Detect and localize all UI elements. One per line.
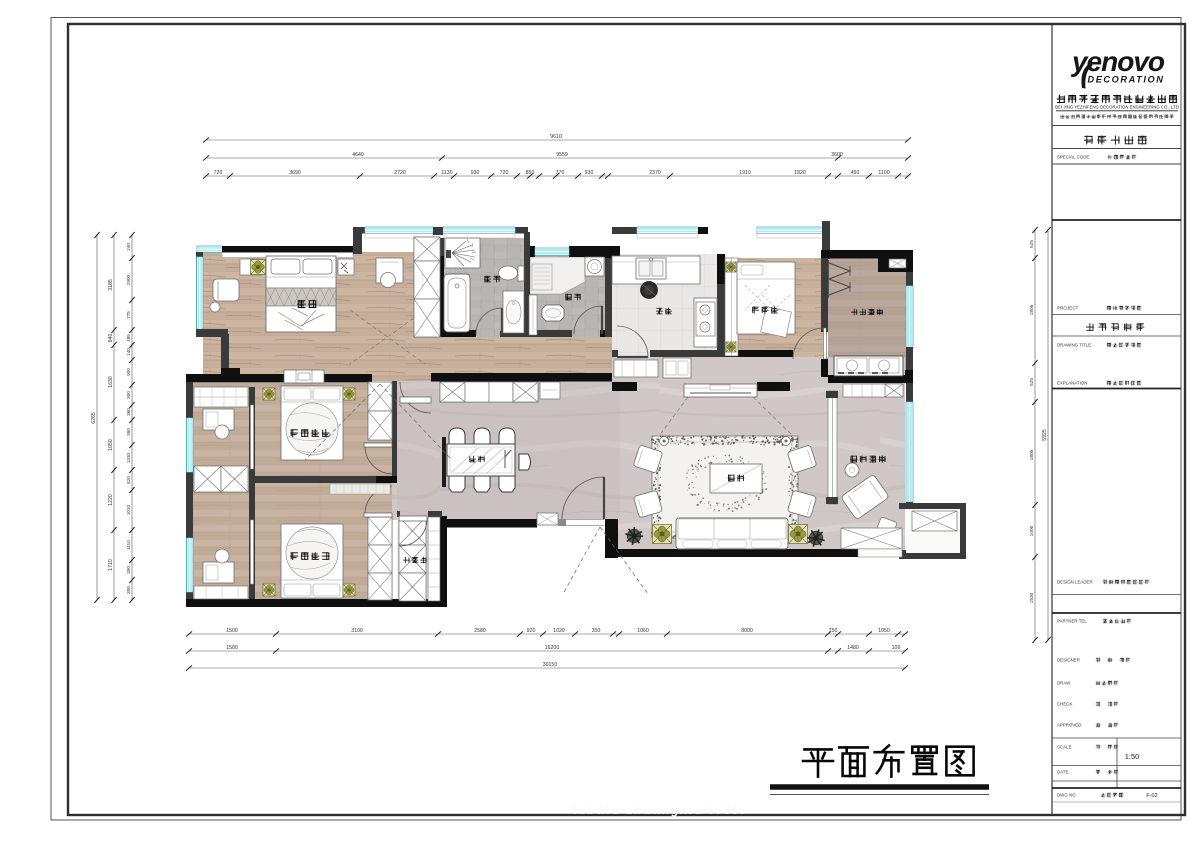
svg-text:DRAWING TITLE: DRAWING TITLE: [1057, 343, 1091, 348]
svg-text:8000: 8000: [741, 628, 753, 634]
svg-text:1530: 1530: [1029, 592, 1035, 603]
svg-text:1710: 1710: [108, 559, 114, 571]
svg-text:BEI JING YEZHIFENG DECORATION: BEI JING YEZHIFENG DECORATION ENGINEERIN…: [1055, 105, 1178, 110]
svg-text:750: 750: [829, 628, 838, 634]
svg-text:3100: 3100: [351, 628, 363, 634]
svg-text:1330: 1330: [126, 452, 131, 463]
svg-text:SCALE: SCALE: [1057, 745, 1071, 750]
svg-text:16200: 16200: [545, 645, 560, 651]
svg-text:185: 185: [126, 334, 131, 342]
svg-text:DESIGN LEADER: DESIGN LEADER: [1057, 580, 1093, 585]
svg-text:1910: 1910: [739, 170, 751, 176]
svg-text:1020: 1020: [553, 628, 565, 634]
svg-text:1060: 1060: [637, 628, 649, 634]
svg-text:EXPLANATION: EXPLANATION: [1057, 381, 1087, 386]
svg-text:720: 720: [214, 170, 223, 176]
svg-text:9559: 9559: [556, 152, 568, 158]
svg-text:525: 525: [1029, 378, 1035, 386]
svg-text:1806: 1806: [1029, 304, 1035, 315]
svg-text:6265: 6265: [91, 412, 97, 424]
svg-text:1500: 1500: [226, 628, 238, 634]
svg-text:3690: 3690: [289, 170, 301, 176]
svg-text:380: 380: [126, 428, 131, 436]
svg-text:930: 930: [471, 170, 480, 176]
svg-text:300: 300: [126, 391, 131, 399]
svg-text:1500: 1500: [226, 645, 238, 651]
svg-text:450: 450: [851, 170, 860, 176]
svg-text:APPROVED: APPROVED: [1057, 723, 1081, 728]
svg-text:300: 300: [126, 586, 131, 594]
svg-text:1806: 1806: [1029, 449, 1035, 460]
svg-text:350: 350: [126, 566, 131, 574]
svg-text:1006: 1006: [1029, 525, 1035, 536]
svg-text:4640: 4640: [352, 152, 364, 158]
svg-text:360: 360: [126, 408, 131, 416]
svg-text:140: 140: [126, 348, 131, 356]
svg-text:240: 240: [126, 243, 131, 251]
svg-text:F-02: F-02: [1146, 793, 1157, 799]
svg-text:1010: 1010: [126, 504, 131, 515]
svg-text:1050: 1050: [108, 439, 114, 451]
svg-text:900: 900: [126, 368, 131, 376]
svg-text:1050: 1050: [878, 628, 890, 634]
svg-text:1480: 1480: [847, 645, 859, 651]
svg-text:106: 106: [892, 645, 901, 651]
svg-text:SPECIAL CODE: SPECIAL CODE: [1057, 155, 1089, 160]
svg-text:DECORATION: DECORATION: [1087, 75, 1164, 85]
svg-text:1100: 1100: [878, 170, 889, 176]
svg-text:770: 770: [556, 170, 565, 176]
svg-text:720: 720: [500, 170, 509, 176]
svg-text:1820: 1820: [794, 170, 806, 176]
svg-text:930: 930: [585, 170, 594, 176]
svg-text:9610: 9610: [550, 134, 562, 140]
svg-text:DESIGNER: DESIGNER: [1057, 658, 1080, 663]
svg-text:820: 820: [126, 476, 131, 484]
svg-text:2900: 2900: [126, 274, 131, 285]
svg-text:DWG NO: DWG NO: [1057, 793, 1076, 798]
svg-text:525: 525: [1029, 240, 1035, 248]
svg-text:850: 850: [526, 170, 535, 176]
svg-text:1:50: 1:50: [1125, 752, 1140, 761]
svg-text:5925: 5925: [1042, 429, 1048, 441]
svg-text:2580: 2580: [474, 628, 486, 634]
svg-text:1220: 1220: [108, 494, 114, 506]
svg-text:2720: 2720: [394, 170, 406, 176]
svg-text:1110: 1110: [126, 540, 131, 550]
svg-text:940: 940: [108, 334, 114, 343]
svg-text:DRAW: DRAW: [1057, 681, 1071, 686]
svg-text:1630: 1630: [108, 376, 114, 388]
svg-text:2370: 2370: [649, 170, 661, 176]
svg-text:PROJECT: PROJECT: [1057, 306, 1079, 311]
svg-text:tubatu zhuangxiu to8to: tubatu zhuangxiu to8to: [572, 803, 748, 817]
svg-text:3600: 3600: [831, 152, 843, 158]
svg-text:920: 920: [527, 628, 536, 634]
svg-text:30150: 30150: [543, 662, 558, 668]
svg-text:CHECK: CHECK: [1057, 702, 1072, 707]
svg-text:350: 350: [592, 628, 601, 634]
svg-text:PARTNER TEL: PARTNER TEL: [1057, 619, 1087, 624]
svg-text:DATE: DATE: [1057, 770, 1068, 775]
svg-text:1130: 1130: [441, 170, 452, 176]
svg-text:3185: 3185: [108, 279, 114, 291]
svg-text:775: 775: [126, 311, 131, 319]
